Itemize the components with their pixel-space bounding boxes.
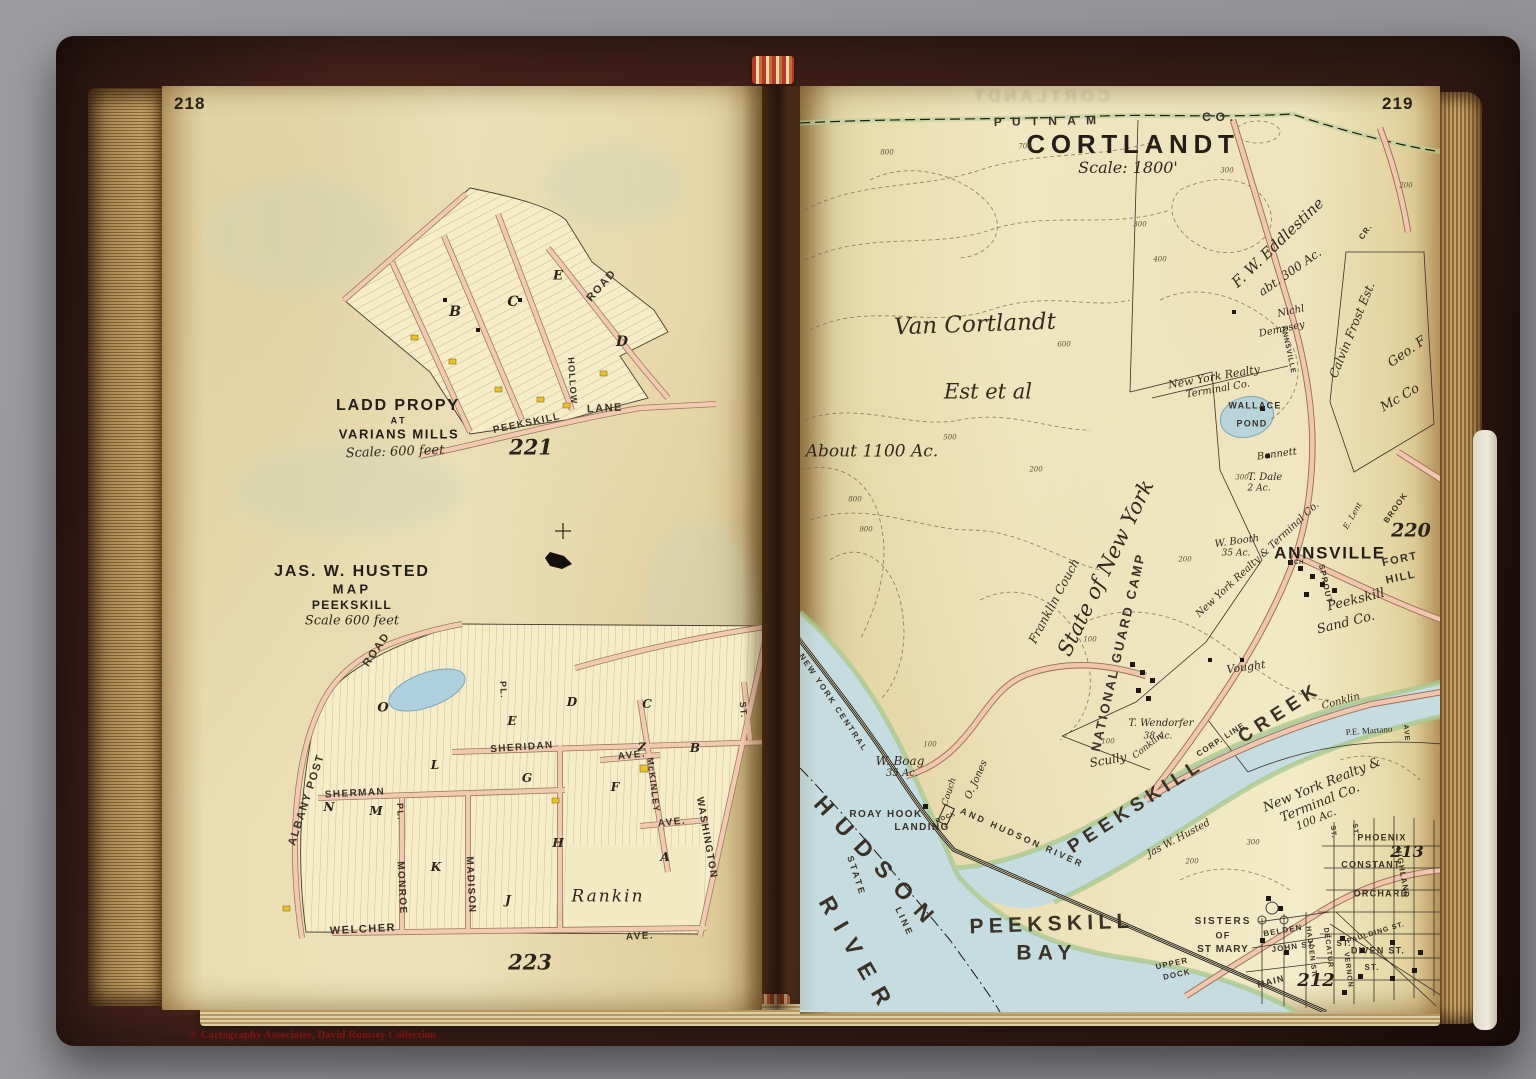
page-edges-right-paper bbox=[1473, 430, 1497, 1030]
page-number-left: 218 bbox=[174, 94, 205, 114]
copyright-line: © Cartography Associates, David Rumsey C… bbox=[190, 1030, 436, 1041]
binding-stitch-top bbox=[752, 56, 794, 84]
page-number-right: 219 bbox=[1382, 94, 1413, 114]
left-page bbox=[162, 86, 762, 1010]
right-page bbox=[800, 86, 1440, 1014]
page-edges-left bbox=[88, 88, 162, 1006]
atlas-scan: LADD PROPYATVARIANS MILLSScale: 600 feet… bbox=[0, 0, 1536, 1079]
